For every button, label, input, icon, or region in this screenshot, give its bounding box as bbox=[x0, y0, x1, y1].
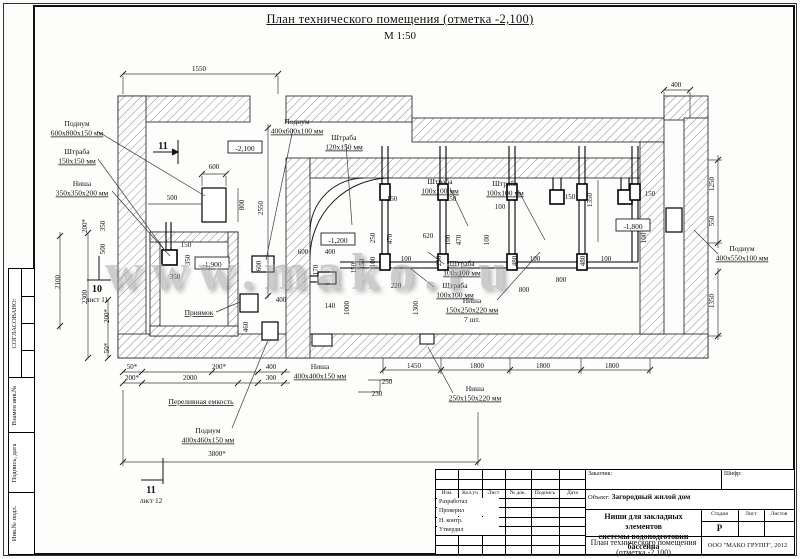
sheet-label: Лист bbox=[738, 510, 764, 519]
rev-col-date: Дата bbox=[559, 489, 586, 498]
sheet-title-line2: (отметка -2,100) bbox=[586, 548, 701, 558]
stage-grid: Стадия Лист Листов Р bbox=[701, 509, 794, 536]
sheet-title: План технического помещения (отметка -2,… bbox=[586, 538, 701, 558]
strip-sign-date-label: Подпись, дата bbox=[9, 433, 21, 493]
doc-title-line1: Ниши для закладных элементов bbox=[586, 512, 701, 532]
rev-col-doc: № док. bbox=[505, 489, 531, 498]
title-block: Заказчик: Шифр: Объект: Загородный жилой… bbox=[585, 469, 795, 555]
revision-table: Изм. Кол.уч Лист № док. Подпись Дата Раз… bbox=[435, 469, 587, 555]
rev-col-sign: Подпись bbox=[531, 489, 559, 498]
drawing-title: План технического помещения (отметка -2,… bbox=[120, 12, 680, 27]
sheets-label: Листов bbox=[764, 510, 794, 519]
strip-replace-inv: Взамен инв.№ bbox=[8, 377, 35, 434]
object-label: Объект: bbox=[588, 494, 610, 501]
role-ncontrol: Н. контр. bbox=[437, 517, 499, 526]
role-approved: Утвердил bbox=[437, 526, 499, 535]
stage-label: Стадия bbox=[701, 510, 738, 519]
strip-inv-orig-label: Инв.№ подл. bbox=[9, 493, 21, 554]
strip-sign-date: Подпись, дата bbox=[8, 432, 35, 494]
strip-replace-inv-label: Взамен инв.№ bbox=[9, 378, 21, 433]
customer-label: Заказчик: bbox=[588, 471, 718, 477]
role-checked: Проверил bbox=[437, 507, 499, 516]
role-developed: Разработал bbox=[437, 498, 499, 507]
strip-inv-orig: Инв.№ подл. bbox=[8, 492, 35, 555]
object-value: Загородный жилой дом bbox=[611, 492, 690, 501]
company-name: ООО "МАКО ГРУПП", 2012 bbox=[701, 542, 794, 549]
rev-col-list: Лист bbox=[482, 489, 505, 498]
drawing-scale: М 1:50 bbox=[120, 30, 680, 42]
stage-value: Р bbox=[701, 523, 738, 533]
strip-agreed-label: СОГЛАСОВАНО: bbox=[9, 269, 21, 378]
rev-col-koluch: Кол.уч bbox=[458, 489, 482, 498]
sheet-title-line1: План технического помещения bbox=[586, 538, 701, 548]
object-row: Объект: Загородный жилой дом bbox=[588, 492, 792, 501]
rev-col-izm: Изм. bbox=[436, 489, 458, 498]
code-label: Шифр: bbox=[724, 471, 792, 477]
strip-agreed: СОГЛАСОВАНО: bbox=[8, 268, 35, 379]
drawing-sheet: 15504006008002550600500150350350200*3505… bbox=[0, 0, 800, 559]
